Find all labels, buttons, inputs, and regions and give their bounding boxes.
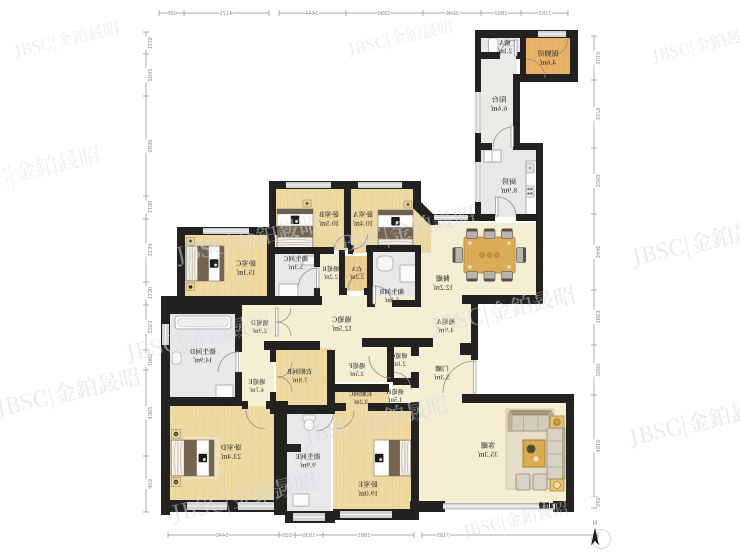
svg-text:2162: 2162 (539, 11, 552, 17)
svg-text:2010: 2010 (594, 52, 600, 65)
svg-text:2253: 2253 (146, 321, 152, 334)
svg-text:3444: 3444 (305, 11, 319, 17)
svg-text:3134: 3134 (146, 243, 152, 257)
svg-text:1115: 1115 (146, 37, 152, 49)
svg-text:535: 535 (282, 533, 292, 539)
svg-text:2080: 2080 (594, 364, 600, 377)
svg-text:5440: 5440 (216, 533, 229, 539)
svg-text:5038: 5038 (146, 140, 152, 153)
svg-text:1130: 1130 (146, 287, 152, 299)
svg-text:3390: 3390 (378, 11, 391, 17)
svg-text:565: 565 (594, 497, 600, 507)
svg-text:3379: 3379 (594, 108, 600, 121)
svg-text:4171: 4171 (220, 11, 233, 17)
svg-text:1892: 1892 (495, 11, 508, 17)
svg-text:1936: 1936 (303, 533, 316, 539)
svg-text:4302: 4302 (146, 407, 152, 420)
svg-text:N: N (592, 520, 597, 527)
svg-text:4915: 4915 (594, 440, 600, 453)
svg-text:3209: 3209 (594, 175, 600, 188)
svg-text:3046: 3046 (446, 11, 459, 17)
svg-text:2042: 2042 (146, 69, 152, 82)
svg-text:1881: 1881 (358, 533, 371, 539)
svg-text:1883: 1883 (594, 311, 600, 324)
svg-text:1130: 1130 (146, 201, 152, 213)
svg-text:695: 695 (167, 11, 177, 17)
svg-text:403: 403 (146, 479, 152, 489)
svg-text:7185: 7185 (437, 533, 450, 539)
svg-text:3446: 3446 (594, 246, 600, 259)
